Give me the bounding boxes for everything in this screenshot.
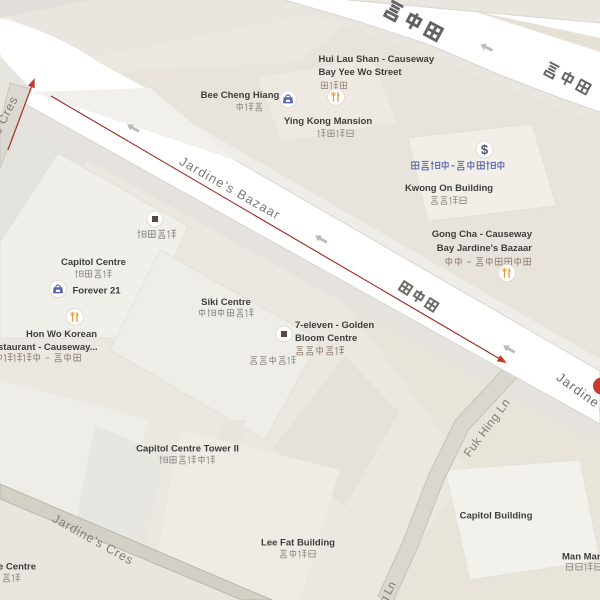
svg-text:Bloom Centre: Bloom Centre	[295, 333, 357, 344]
svg-text:Capitol Centre: Capitol Centre	[61, 257, 126, 268]
svg-text:Siki Centre: Siki Centre	[201, 297, 251, 308]
svg-text:$: $	[481, 142, 489, 157]
svg-text:7-eleven - Golden: 7-eleven - Golden	[295, 320, 374, 331]
svg-text:Bee Cheng Hiang: Bee Cheng Hiang	[201, 90, 280, 101]
svg-text:e Centre: e Centre	[0, 562, 36, 573]
svg-text:Bay Jardine's Bazaar: Bay Jardine's Bazaar	[437, 243, 533, 254]
svg-text:Hui Lau Shan - Causeway: Hui Lau Shan - Causeway	[319, 54, 435, 65]
svg-text:Hon Wo Korean: Hon Wo Korean	[26, 329, 97, 340]
svg-text:Forever 21: Forever 21	[73, 286, 122, 297]
svg-text:Man Mansion: Man Mansion	[562, 552, 600, 563]
svg-text:Gong Cha - Causeway: Gong Cha - Causeway	[432, 229, 533, 240]
svg-text:Lee Fat Building: Lee Fat Building	[261, 538, 335, 549]
svg-text:Capitol Building: Capitol Building	[460, 511, 533, 522]
svg-text:Kwong On Building: Kwong On Building	[405, 183, 493, 194]
svg-text:Capitol Centre Tower II: Capitol Centre Tower II	[136, 444, 239, 455]
svg-text:Bay Yee Wo Street: Bay Yee Wo Street	[319, 67, 403, 78]
svg-text:staurant - Causeway...: staurant - Causeway...	[0, 342, 98, 353]
svg-text:Ying Kong Mansion: Ying Kong Mansion	[284, 116, 373, 127]
